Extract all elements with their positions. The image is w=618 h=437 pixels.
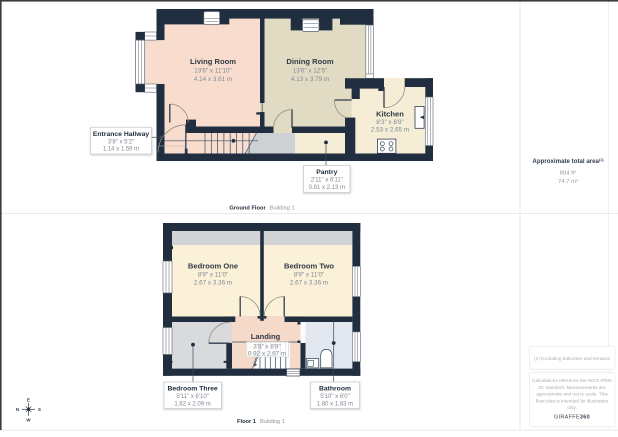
svg-text:2.67 x 3.36 m: 2.67 x 3.36 m bbox=[290, 279, 328, 286]
svg-text:3'8" x 5'2": 3'8" x 5'2" bbox=[108, 139, 134, 145]
svg-text:8'3" x 8'8": 8'3" x 8'8" bbox=[376, 119, 404, 126]
svg-text:approximate and not to scale.: approximate and not to scale. This bbox=[536, 392, 608, 397]
svg-text:0.91 x 2.13 m: 0.91 x 2.13 m bbox=[309, 185, 345, 191]
svg-text:Kitchen: Kitchen bbox=[376, 110, 404, 119]
svg-text:only.: only. bbox=[567, 405, 577, 410]
svg-text:E: E bbox=[27, 398, 30, 403]
svg-text:5'11" x 6'10": 5'11" x 6'10" bbox=[176, 394, 208, 400]
svg-text:Entrance Hallway: Entrance Hallway bbox=[93, 131, 150, 138]
svg-text:804 ft²: 804 ft² bbox=[560, 171, 577, 177]
svg-text:1.82 x 2.09 m: 1.82 x 2.09 m bbox=[174, 401, 210, 407]
svg-text:Pantry: Pantry bbox=[316, 169, 337, 176]
svg-text:13'6" x 11'10": 13'6" x 11'10" bbox=[194, 68, 232, 75]
svg-text:8'9" x 11'0": 8'9" x 11'0" bbox=[198, 271, 229, 278]
svg-text:1.80 x 1.83 m: 1.80 x 1.83 m bbox=[317, 401, 353, 407]
svg-text:1.14 x 1.59 m: 1.14 x 1.59 m bbox=[103, 147, 139, 153]
svg-text:Bathroom: Bathroom bbox=[319, 386, 351, 393]
svg-text:5'10" x 6'0": 5'10" x 6'0" bbox=[320, 394, 350, 400]
svg-text:Floor 1Building 1: Floor 1Building 1 bbox=[237, 419, 285, 425]
svg-text:N: N bbox=[16, 407, 19, 412]
svg-text:Living Room: Living Room bbox=[190, 57, 236, 66]
svg-text:Ground FloorBuilding 1: Ground FloorBuilding 1 bbox=[229, 205, 294, 211]
svg-text:3'8" x 8'9": 3'8" x 8'9" bbox=[253, 344, 281, 351]
svg-text:2'11" x 6'11": 2'11" x 6'11" bbox=[311, 178, 343, 184]
svg-text:Bedroom Two: Bedroom Two bbox=[284, 262, 334, 271]
svg-text:8'9" x 11'0": 8'9" x 11'0" bbox=[294, 271, 325, 278]
svg-text:Dining Room: Dining Room bbox=[286, 57, 333, 66]
svg-text:3C standard. Measurements are: 3C standard. Measurements are bbox=[538, 385, 606, 390]
svg-text:Bedroom One: Bedroom One bbox=[188, 262, 238, 271]
svg-text:0.92 x 2.67 m: 0.92 x 2.67 m bbox=[248, 351, 286, 358]
svg-text:(1) Excluding balconies and te: (1) Excluding balconies and terraces bbox=[534, 356, 610, 361]
svg-text:Approximate total area(1): Approximate total area(1) bbox=[532, 158, 604, 165]
svg-text:Bedroom Three: Bedroom Three bbox=[167, 386, 217, 393]
svg-text:GIRAFFE360: GIRAFFE360 bbox=[554, 415, 590, 421]
svg-text:13'6" x 12'5": 13'6" x 12'5" bbox=[293, 68, 328, 75]
svg-text:4.14 x 3.61 m: 4.14 x 3.61 m bbox=[194, 76, 232, 83]
svg-text:74.7 m²: 74.7 m² bbox=[558, 179, 578, 185]
svg-text:2.53 x 2.65 m: 2.53 x 2.65 m bbox=[371, 127, 409, 134]
svg-text:2.67 x 3.36 m: 2.67 x 3.36 m bbox=[194, 279, 232, 286]
svg-text:Calculations reference the RIC: Calculations reference the RICS IPMS bbox=[532, 378, 612, 383]
svg-text:4.13 x 3.79 m: 4.13 x 3.79 m bbox=[291, 76, 329, 83]
svg-text:floor plan is intended for ill: floor plan is intended for illustration bbox=[536, 398, 609, 403]
svg-text:S: S bbox=[38, 407, 41, 412]
svg-text:Landing: Landing bbox=[251, 332, 281, 341]
